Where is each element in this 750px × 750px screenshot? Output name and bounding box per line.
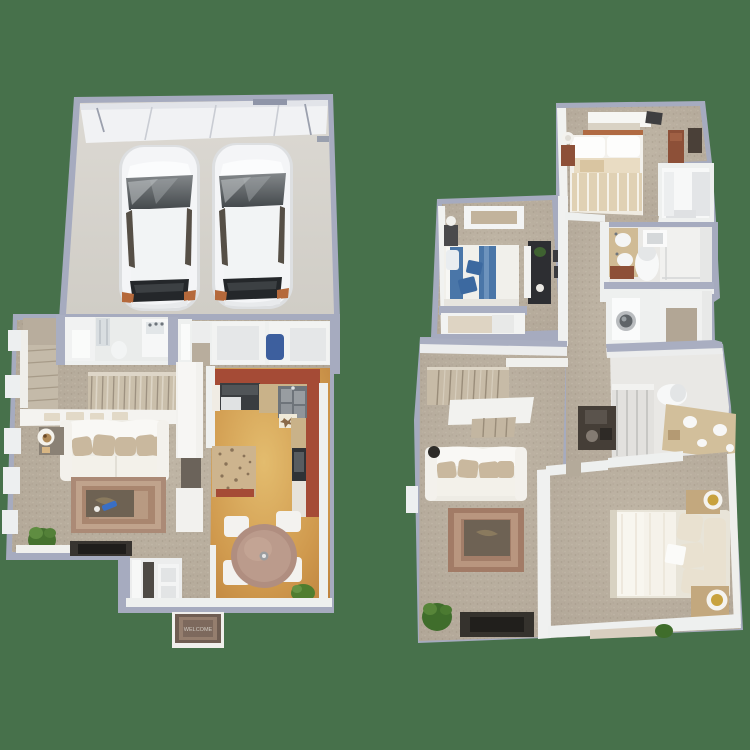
svg-text:WELCOME: WELCOME <box>184 627 213 633</box>
